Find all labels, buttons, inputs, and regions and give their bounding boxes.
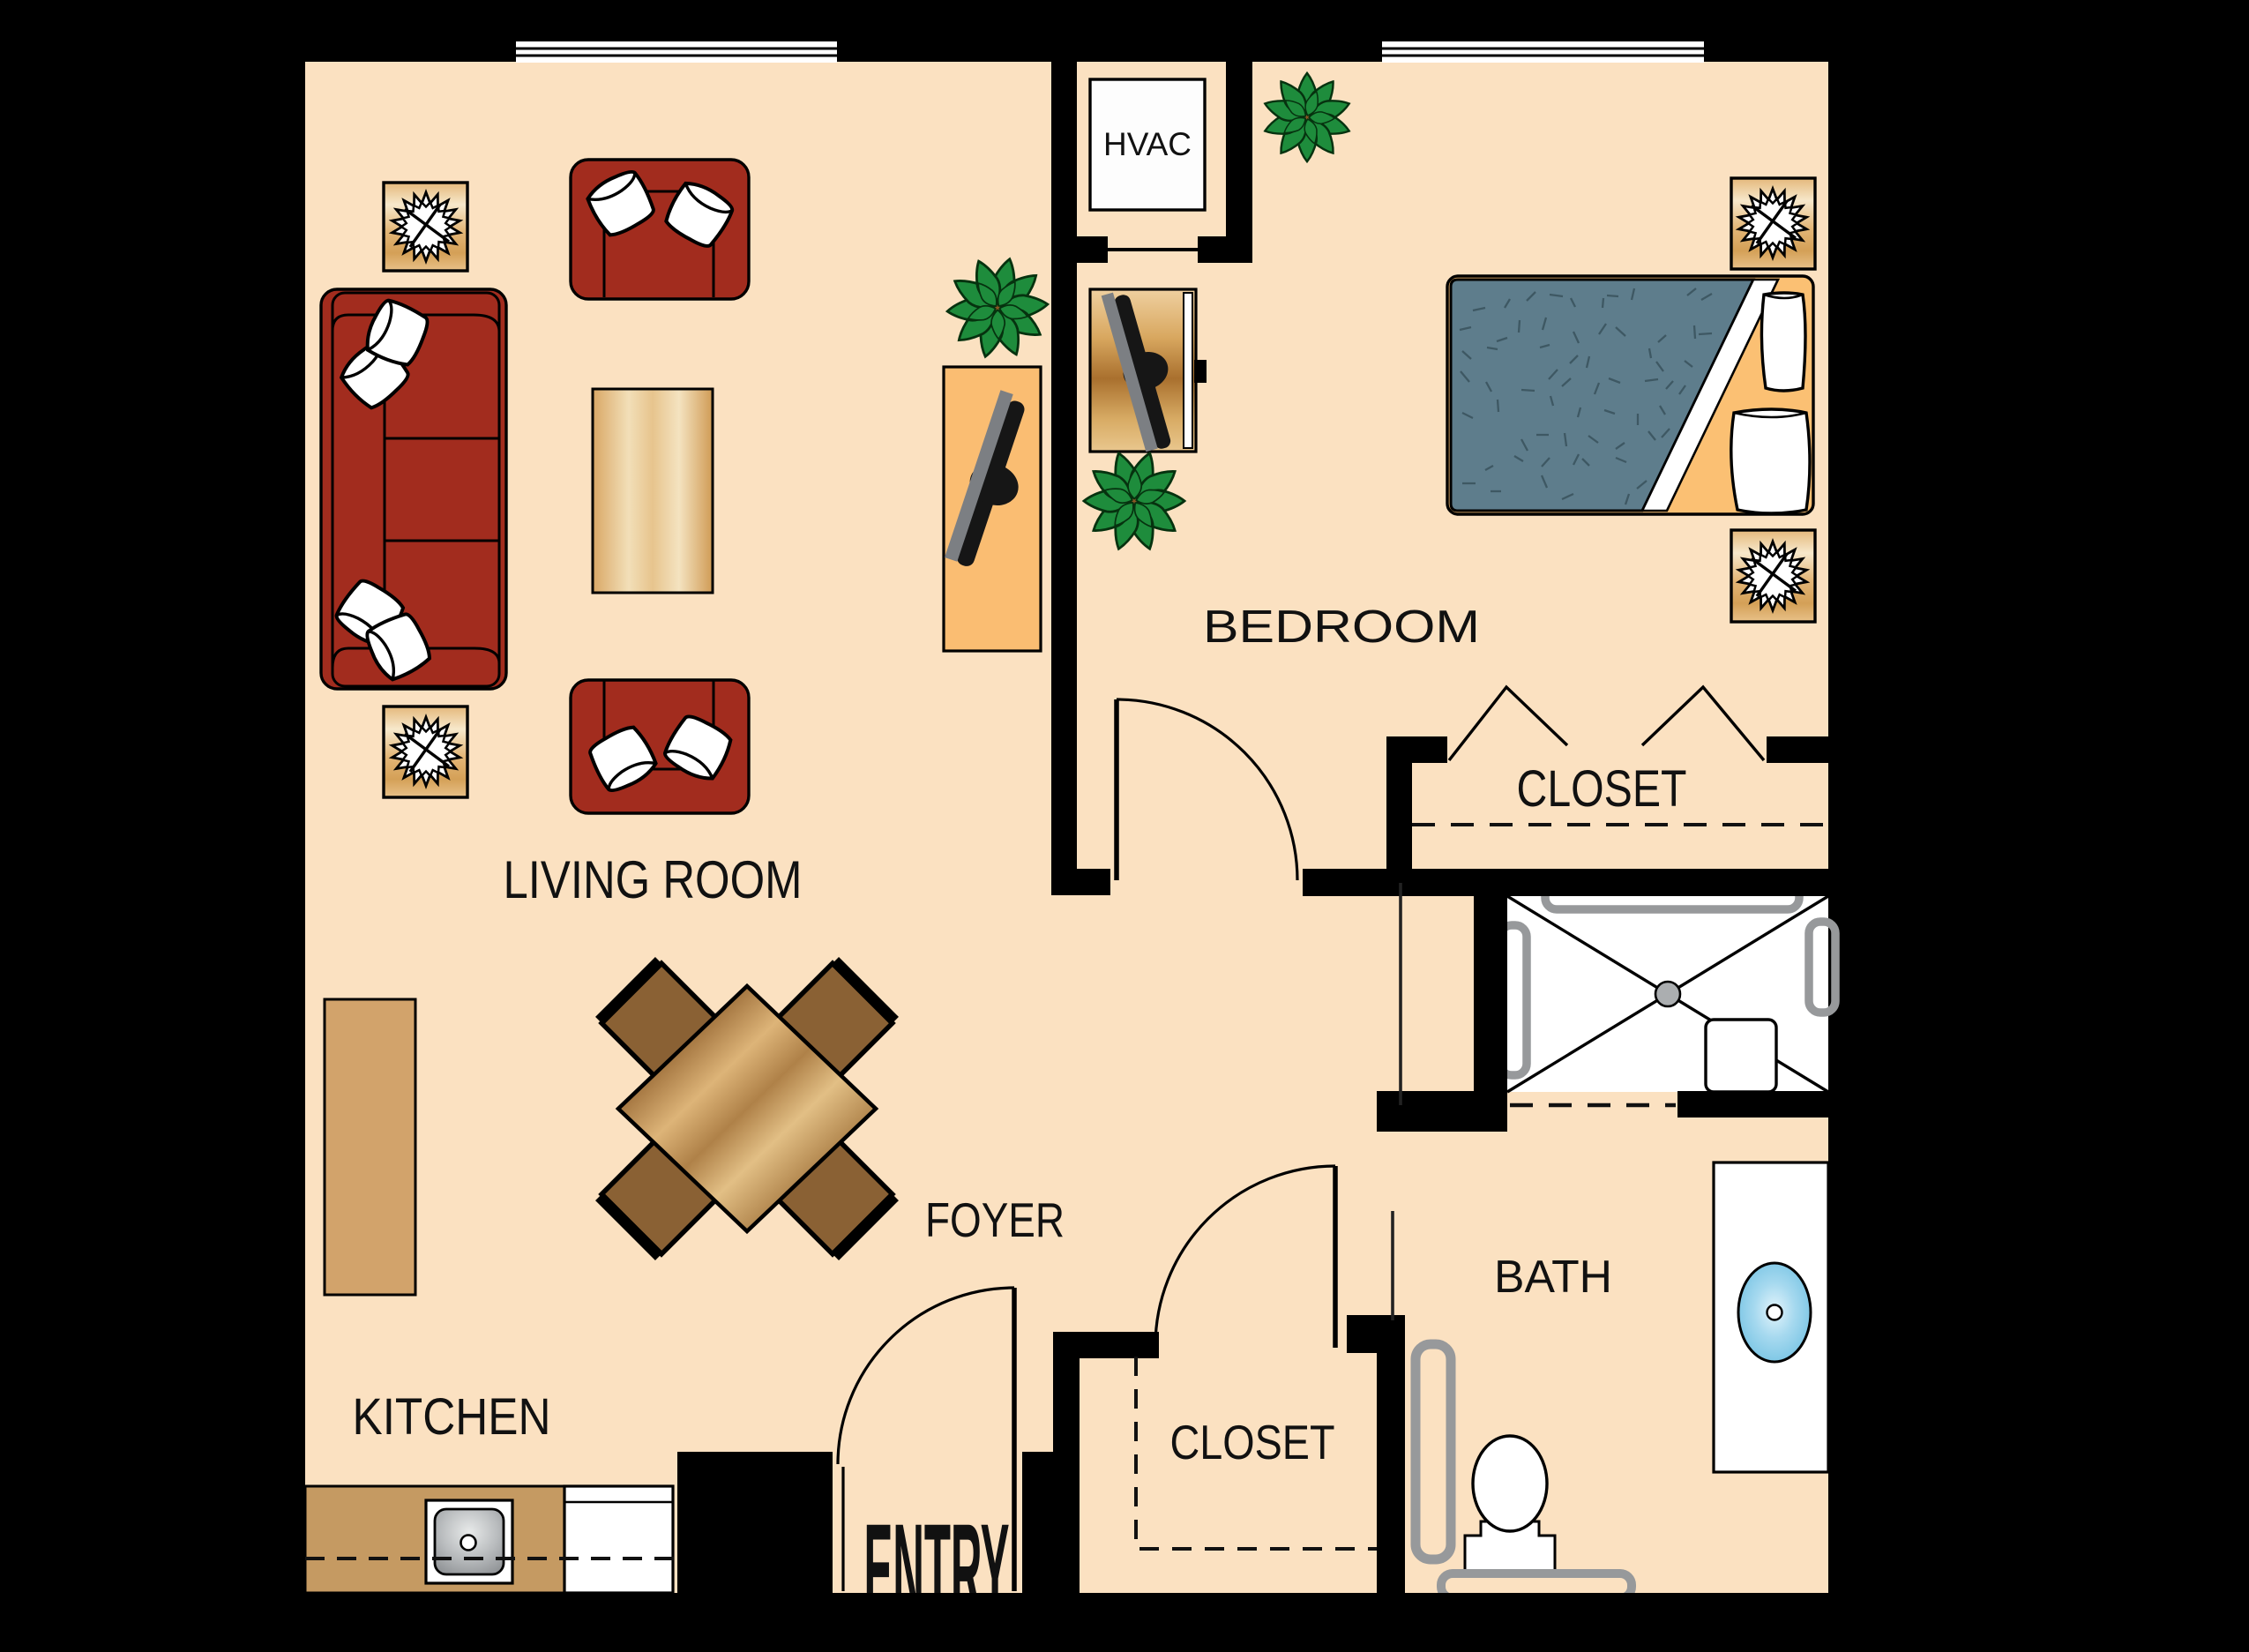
svg-text:CLOSET: CLOSET <box>1170 1415 1335 1469</box>
svg-text:FOYER: FOYER <box>925 1192 1065 1247</box>
svg-text:LIVING ROOM: LIVING ROOM <box>504 850 803 909</box>
svg-text:KITCHEN: KITCHEN <box>353 1388 551 1446</box>
svg-text:CLOSET: CLOSET <box>1517 760 1687 818</box>
svg-text:BEDROOM: BEDROOM <box>1203 602 1480 653</box>
svg-text:BATH: BATH <box>1494 1252 1612 1303</box>
svg-text:HVAC: HVAC <box>1103 126 1192 162</box>
